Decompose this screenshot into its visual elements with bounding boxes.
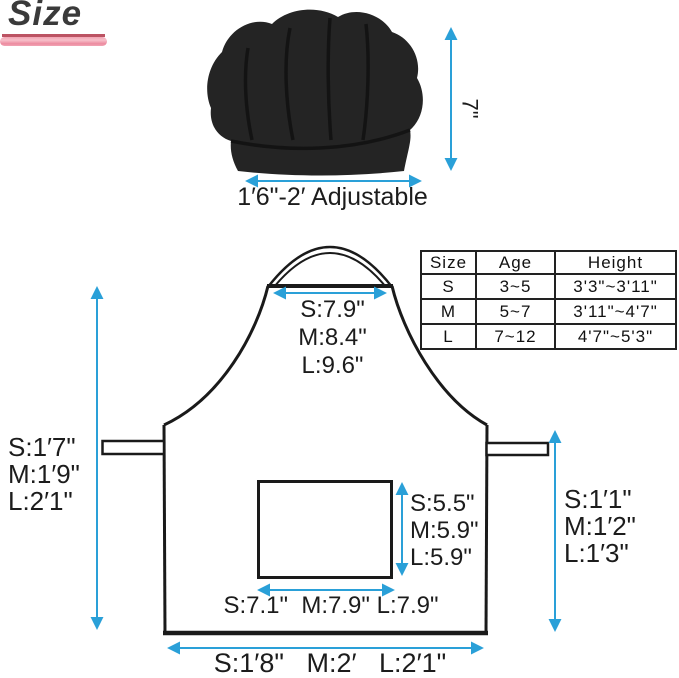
top-width-label: S:7.9" M:8.4" L:9.6": [260, 296, 405, 380]
top-width-s: S:7.9": [260, 296, 405, 324]
bottom-width-label: S:1′8" M:2′ L:2′1": [165, 650, 495, 677]
cell-l-height: 4'7"~5'3": [555, 324, 676, 349]
cell-l-size: L: [421, 324, 476, 349]
cell-m-height: 3'11"~4'7": [555, 299, 676, 324]
apron-right-side: [486, 425, 487, 634]
cell-s-size: S: [421, 274, 476, 299]
pocket-height-s: S:5.5": [410, 490, 479, 517]
cell-m-size: M: [421, 299, 476, 324]
hat-adjustable-label: 1′6"-2′ Adjustable: [230, 184, 435, 211]
size-table-row-m: M 5~7 3'11"~4'7": [421, 299, 676, 324]
neck-strap-inner: [274, 253, 386, 287]
pocket-height-label: S:5.5" M:5.9" L:5.9": [410, 490, 479, 571]
cell-m-age: 5~7: [476, 299, 555, 324]
right-length-s: S:1′1": [564, 486, 636, 513]
cell-s-height: 3'3"~3'11": [555, 274, 676, 299]
right-length-l: L:1′3": [564, 540, 636, 567]
pocket-outline: [259, 482, 392, 578]
left-length-m: M:1′9": [8, 461, 80, 488]
top-width-m: M:8.4": [260, 324, 405, 352]
size-table-row-s: S 3~5 3'3"~3'11": [421, 274, 676, 299]
size-table: Size Age Height S 3~5 3'3"~3'11" M 5~7 3…: [420, 250, 677, 350]
size-table-header-row: Size Age Height: [421, 251, 676, 274]
pocket-height-m: M:5.9": [410, 517, 479, 544]
pocket-width-label: S:7.1" M:7.9" L:7.9": [200, 592, 462, 619]
apron-left-side: [164, 425, 165, 634]
left-waist-tie: [103, 441, 165, 454]
right-waist-tie: [487, 443, 549, 455]
right-length-label: S:1′1" M:1′2" L:1′3": [564, 486, 636, 567]
pocket-height-l: L:5.9": [410, 544, 479, 571]
left-length-s: S:1′7": [8, 434, 80, 461]
left-length-l: L:2′1": [8, 488, 80, 515]
cell-s-age: 3~5: [476, 274, 555, 299]
size-table-row-l: L 7~12 4'7"~5'3": [421, 324, 676, 349]
table-header-height: Height: [555, 251, 676, 274]
top-width-l: L:9.6": [260, 352, 405, 380]
hat-height-label: 7": [457, 89, 484, 129]
table-header-age: Age: [476, 251, 555, 274]
cell-l-age: 7~12: [476, 324, 555, 349]
size-chart-page: Size: [0, 0, 679, 678]
right-length-m: M:1′2": [564, 513, 636, 540]
left-length-label: S:1′7" M:1′9" L:2′1": [8, 434, 80, 515]
apron-left-curve: [164, 286, 268, 425]
table-header-size: Size: [421, 251, 476, 274]
chef-hat-illustration: [207, 10, 423, 176]
